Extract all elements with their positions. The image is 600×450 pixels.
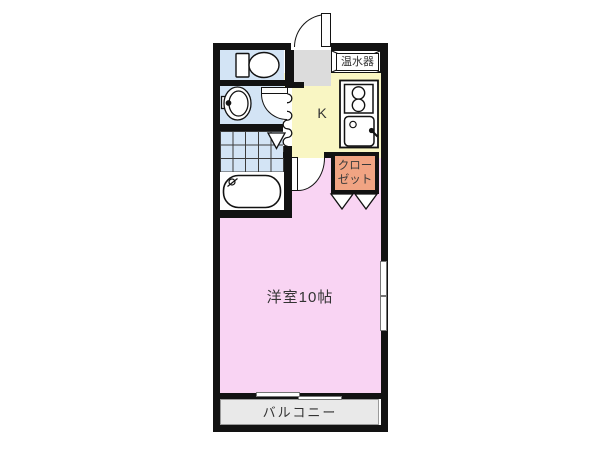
wall-bottom bbox=[213, 425, 388, 432]
wall-left bbox=[213, 43, 220, 432]
room-entrance bbox=[294, 50, 331, 86]
closet-label: クロー ゼット bbox=[333, 156, 377, 190]
entrance-door-leaf bbox=[321, 13, 331, 47]
room-bathtub-area bbox=[220, 172, 284, 210]
water-heater-label: 温水器 bbox=[336, 53, 379, 71]
room-bathroom-tile bbox=[220, 131, 284, 172]
kitchen-door-leaf bbox=[291, 157, 298, 191]
room-toilet bbox=[220, 50, 284, 80]
right-window-lower-sash bbox=[380, 296, 387, 331]
wall-bath-mainroom bbox=[213, 210, 291, 218]
washroom-door-leaf bbox=[261, 87, 288, 94]
floorplan-canvas: { "floorplan": { "title": "1K apartment … bbox=[0, 0, 600, 450]
main-room-label: 洋室10帖 bbox=[250, 287, 350, 306]
balcony-window-right-sash bbox=[298, 396, 342, 401]
right-window-upper-sash bbox=[380, 261, 387, 296]
balcony-window-left-sash bbox=[256, 392, 300, 397]
wall-top-left bbox=[213, 43, 291, 50]
wall-right bbox=[381, 43, 388, 432]
wall-toilet-washroom bbox=[220, 80, 285, 86]
wall-entrance-stub bbox=[294, 82, 304, 88]
wall-top-right bbox=[331, 43, 388, 50]
balcony-label: バルコニー bbox=[248, 402, 352, 421]
wall-kitchen-room-right bbox=[324, 152, 332, 158]
kitchen-label: K bbox=[310, 104, 334, 122]
wall-washroom-bath bbox=[220, 124, 284, 131]
